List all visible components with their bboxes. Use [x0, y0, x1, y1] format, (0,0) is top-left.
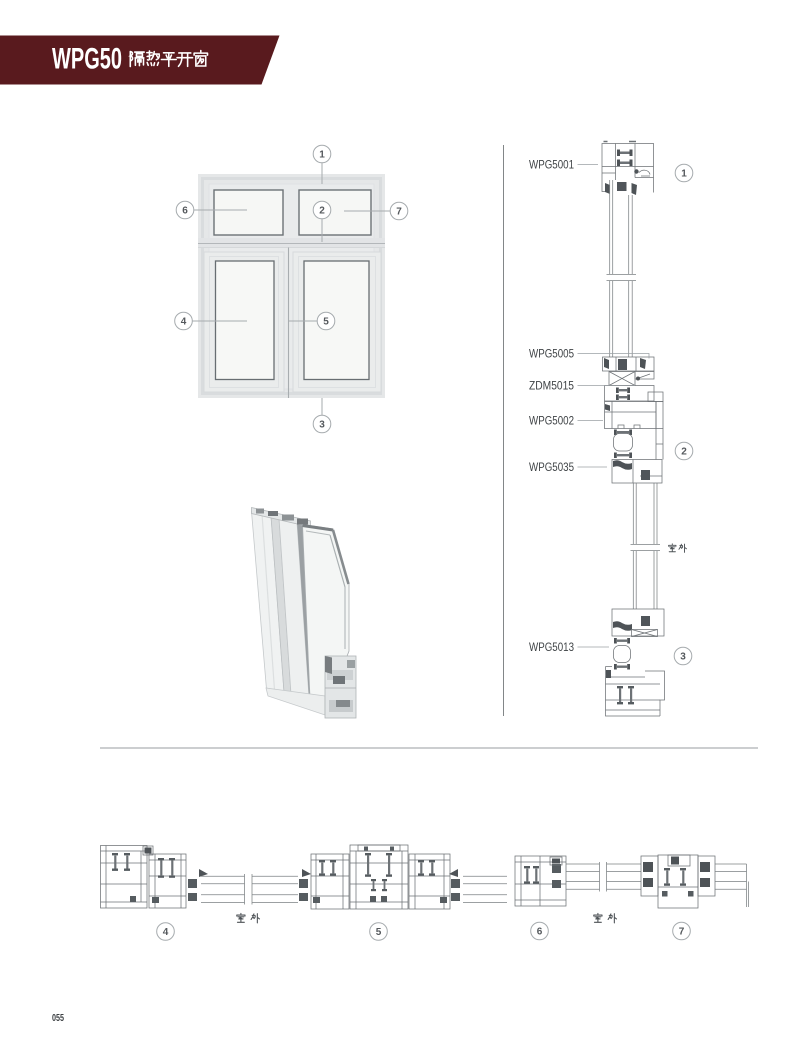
- svg-text:1: 1: [319, 150, 325, 161]
- svg-text:WPG5002: WPG5002: [529, 416, 574, 428]
- svg-text:7: 7: [396, 207, 402, 218]
- svg-text:WPG5005: WPG5005: [529, 349, 574, 361]
- svg-text:3: 3: [319, 420, 325, 431]
- svg-text:055: 055: [52, 1013, 64, 1024]
- svg-text:4: 4: [181, 317, 187, 328]
- svg-text:2: 2: [681, 447, 687, 458]
- svg-text:WPG5035: WPG5035: [529, 462, 574, 474]
- svg-text:5: 5: [323, 317, 329, 328]
- svg-text:6: 6: [537, 927, 543, 938]
- svg-text:6: 6: [182, 206, 188, 217]
- svg-text:1: 1: [681, 169, 687, 180]
- svg-text:ZDM5015: ZDM5015: [529, 381, 574, 393]
- svg-text:4: 4: [163, 927, 169, 938]
- svg-text:3: 3: [680, 652, 686, 663]
- svg-text:2: 2: [319, 206, 325, 217]
- svg-text:WPG50: WPG50: [52, 43, 122, 76]
- svg-text:WPG5013: WPG5013: [529, 642, 574, 654]
- svg-text:WPG5001: WPG5001: [529, 160, 574, 172]
- svg-text:5: 5: [376, 927, 382, 938]
- svg-text:7: 7: [679, 927, 685, 938]
